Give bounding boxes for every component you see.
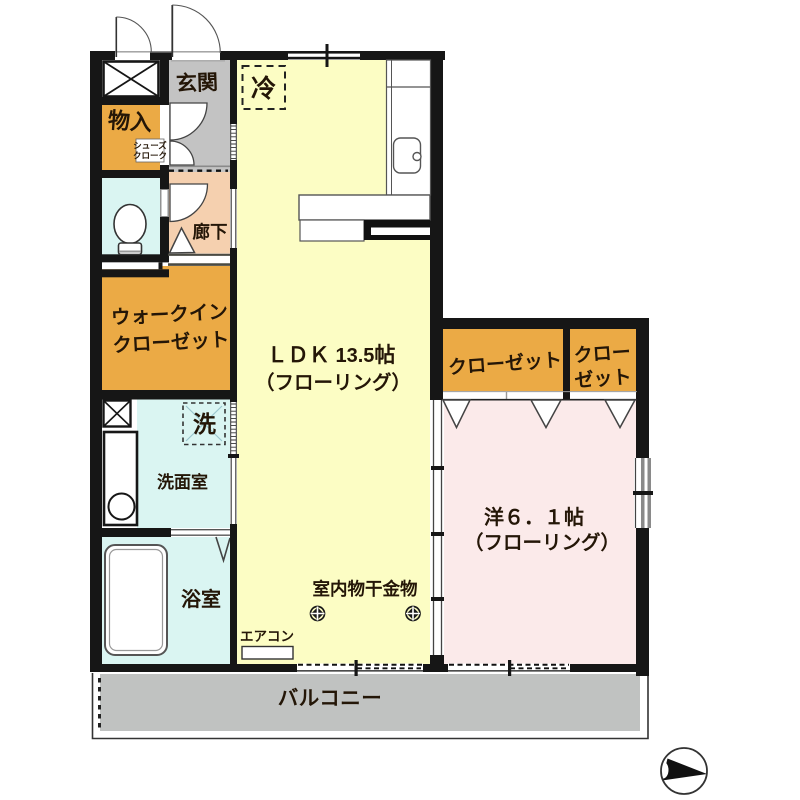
svg-text:（フローリング）: （フローリング） [255, 371, 411, 394]
svg-text:クロー: クロー [573, 341, 631, 367]
svg-text:（フローリング）: （フローリング） [464, 531, 620, 554]
svg-text:クローク: クローク [133, 151, 167, 161]
svg-text:浴室: 浴室 [181, 587, 221, 611]
svg-text:シューズ: シューズ [133, 141, 167, 151]
svg-text:廊下: 廊下 [193, 222, 228, 242]
svg-text:洋６．１帖: 洋６．１帖 [484, 505, 584, 529]
svg-text:物入: 物入 [107, 107, 153, 135]
svg-text:バルコニー: バルコニー [278, 687, 383, 710]
svg-text:洗面室: 洗面室 [157, 472, 208, 492]
svg-text:玄関: 玄関 [176, 70, 219, 95]
svg-text:洗: 洗 [193, 411, 216, 437]
svg-text:室内物干金物: 室内物干金物 [313, 579, 418, 599]
svg-text:冷: 冷 [251, 74, 276, 103]
svg-text:エアコン: エアコン [240, 629, 294, 644]
svg-text:ＬＤＫ 13.5帖: ＬＤＫ 13.5帖 [267, 344, 396, 367]
